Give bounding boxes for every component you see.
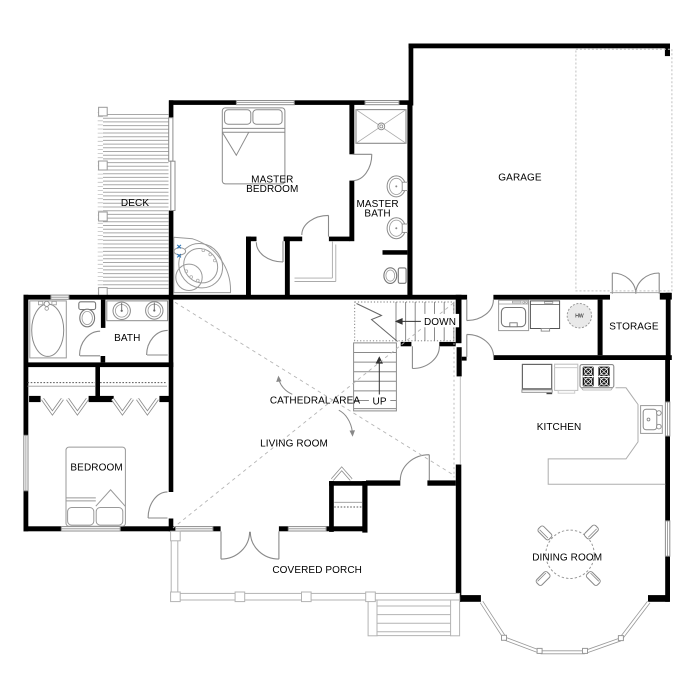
svg-text:BEDROOM: BEDROOM (70, 463, 122, 474)
svg-text:KITCHEN: KITCHEN (537, 422, 582, 433)
svg-text:BATH: BATH (364, 209, 390, 220)
svg-text:DINING ROOM: DINING ROOM (532, 553, 602, 564)
svg-text:STORAGE: STORAGE (609, 321, 659, 332)
svg-text:UP: UP (373, 397, 387, 408)
svg-text:LIVING ROOM: LIVING ROOM (260, 438, 328, 449)
svg-text:HW: HW (575, 314, 584, 320)
svg-text:DECK: DECK (121, 198, 149, 209)
svg-text:COVERED PORCH: COVERED PORCH (272, 565, 362, 576)
svg-text:CATHEDRAL AREA: CATHEDRAL AREA (270, 395, 361, 406)
svg-text:DOWN: DOWN (424, 317, 456, 328)
svg-text:BATH: BATH (114, 333, 140, 344)
svg-text:BEDROOM: BEDROOM (246, 184, 298, 195)
svg-text:GARAGE: GARAGE (498, 172, 542, 183)
